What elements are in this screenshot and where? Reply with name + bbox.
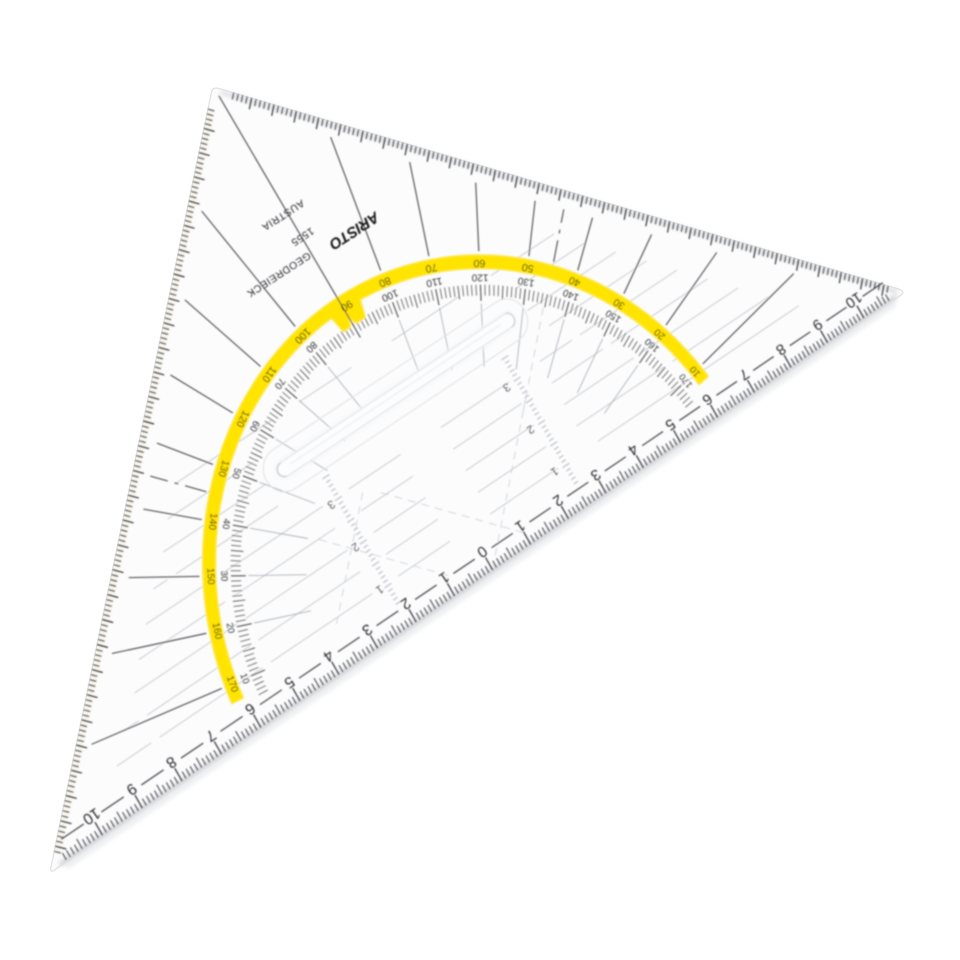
svg-text:50: 50 — [521, 261, 535, 275]
svg-text:120: 120 — [471, 271, 488, 282]
svg-text:40: 40 — [220, 518, 232, 530]
svg-text:20: 20 — [224, 622, 237, 634]
svg-text:70: 70 — [424, 261, 438, 275]
svg-text:30: 30 — [219, 571, 230, 582]
svg-text:60: 60 — [473, 257, 485, 269]
svg-text:140: 140 — [206, 512, 219, 530]
svg-text:150: 150 — [204, 568, 216, 586]
